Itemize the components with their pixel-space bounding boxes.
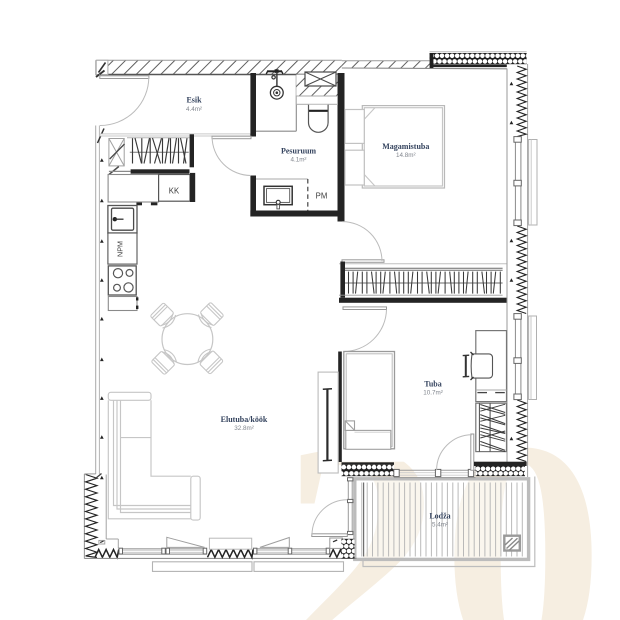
svg-text:Magamistuba: Magamistuba (382, 142, 429, 151)
svg-text:4.4m²: 4.4m² (186, 106, 202, 113)
svg-text:10.7m²: 10.7m² (423, 390, 443, 397)
svg-text:Esik: Esik (186, 96, 202, 105)
svg-text:KK: KK (169, 187, 180, 196)
svg-text:Pesuruum: Pesuruum (281, 147, 316, 156)
svg-text:Lodža: Lodža (429, 512, 450, 521)
svg-text:NPM: NPM (116, 241, 125, 257)
svg-text:14.8m²: 14.8m² (396, 152, 416, 159)
svg-text:32.8m²: 32.8m² (234, 425, 254, 432)
svg-text:4.1m²: 4.1m² (290, 157, 306, 164)
svg-text:Tuba: Tuba (424, 380, 442, 389)
svg-text:PM: PM (316, 192, 328, 201)
svg-text:5.4m²: 5.4m² (432, 522, 448, 529)
svg-text:Elutuba/köök: Elutuba/köök (221, 415, 268, 424)
